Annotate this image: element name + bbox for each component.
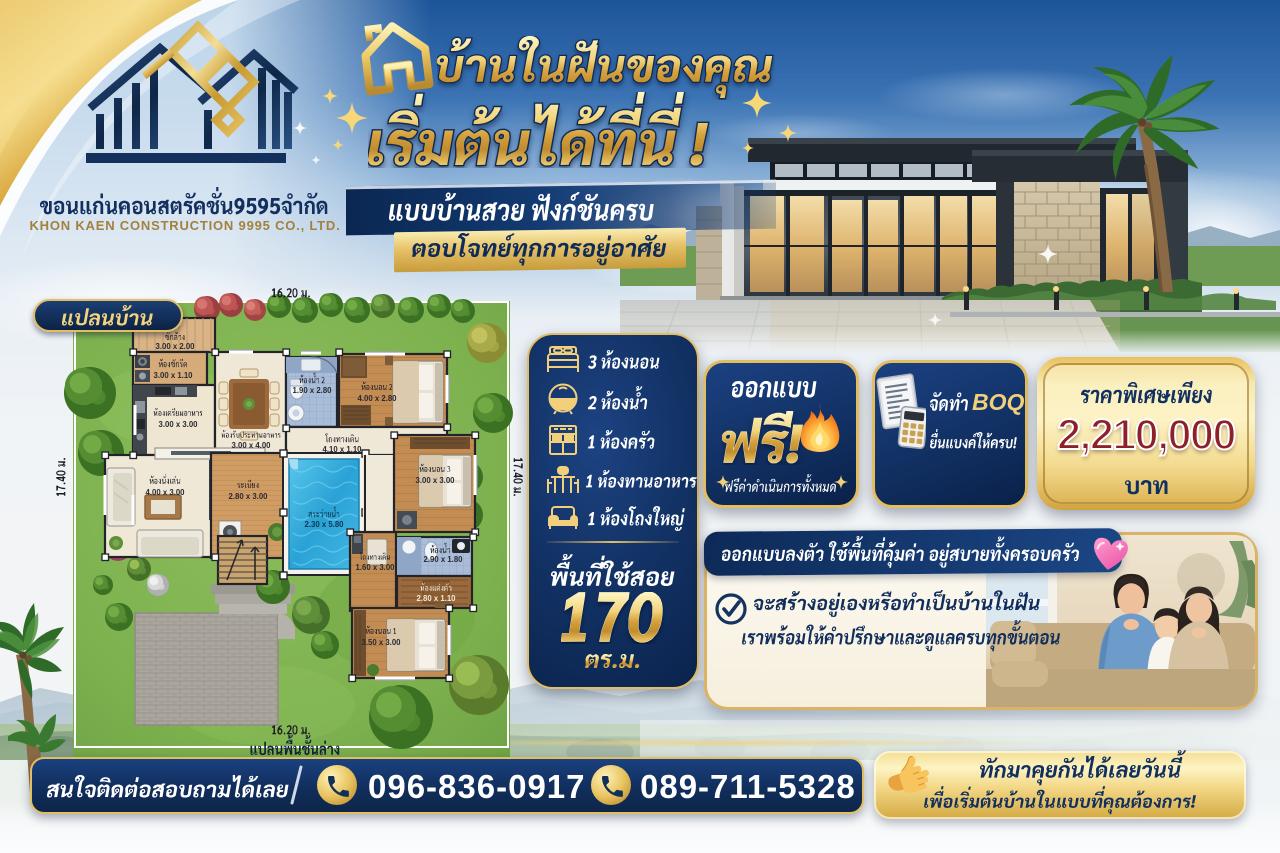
svg-text:3.00 x 1.10: 3.00 x 1.10 [153,371,193,380]
svg-text:4.00 x 2.80: 4.00 x 2.80 [357,394,397,403]
svg-text:2.80 x 1.10: 2.80 x 1.10 [416,594,456,603]
svg-text:1.60 x 3.00: 1.60 x 3.00 [355,563,395,572]
svg-text:1.90 x 2.80: 1.90 x 2.80 [292,386,332,395]
svg-text:3.00 x 4.00: 3.00 x 4.00 [231,441,271,450]
svg-text:3.00 x 3.00: 3.00 x 3.00 [415,476,455,485]
svg-text:2.80 x 3.00: 2.80 x 3.00 [228,492,268,501]
svg-text:2.30 x 5.80: 2.30 x 5.80 [304,520,344,529]
svg-text:3.00 x 3.00: 3.00 x 3.00 [158,420,198,429]
svg-text:4.10 x 1.10: 4.10 x 1.10 [322,445,362,454]
svg-text:3.50 x 3.00: 3.50 x 3.00 [361,638,401,647]
svg-text:3.00 x 2.00: 3.00 x 2.00 [155,342,195,351]
svg-text:4.00 x 3.00: 4.00 x 3.00 [145,488,185,497]
svg-text:2.90 x 1.80: 2.90 x 1.80 [423,555,463,564]
